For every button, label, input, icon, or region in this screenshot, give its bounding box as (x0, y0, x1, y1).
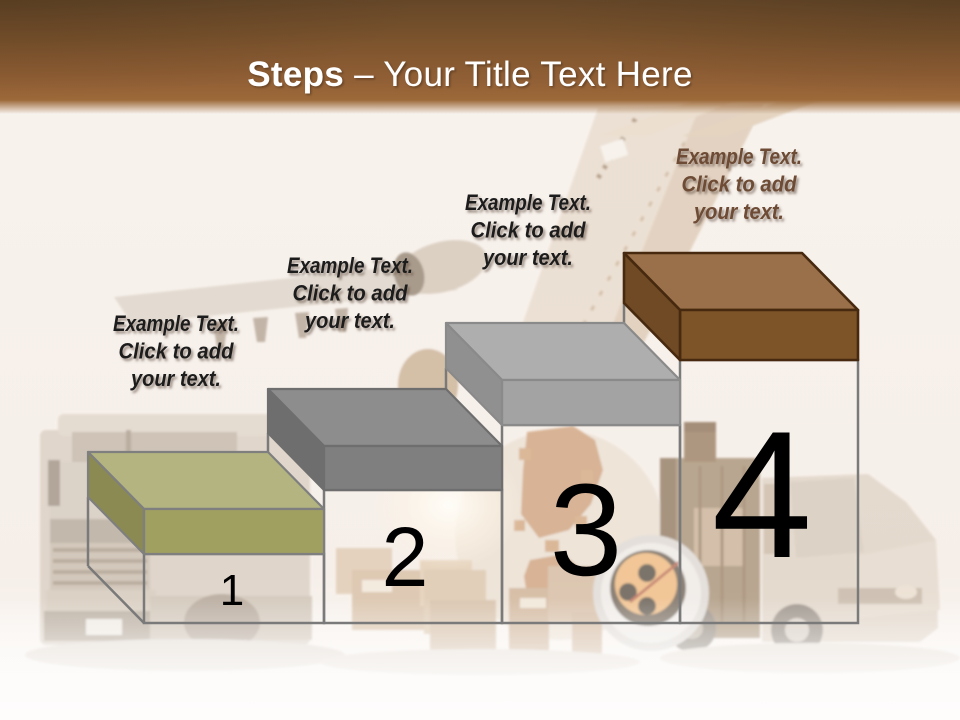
svg-text:Example Text.Click to addyour: Example Text.Click to addyour text. (676, 144, 802, 224)
svg-text:Steps – Your Title Text Here: Steps – Your Title Text Here (247, 55, 693, 94)
svg-text:4: 4 (712, 394, 813, 596)
svg-text:2: 2 (382, 510, 429, 604)
svg-text:Example Text.Click to addyour: Example Text.Click to addyour text. (287, 253, 413, 333)
svg-text:1: 1 (220, 566, 244, 615)
svg-text:Example Text.Click to addyour: Example Text.Click to addyour text. (465, 190, 591, 270)
svg-text:Example Text.Click to addyour: Example Text.Click to addyour text. (113, 311, 239, 391)
svg-text:3: 3 (550, 456, 623, 603)
